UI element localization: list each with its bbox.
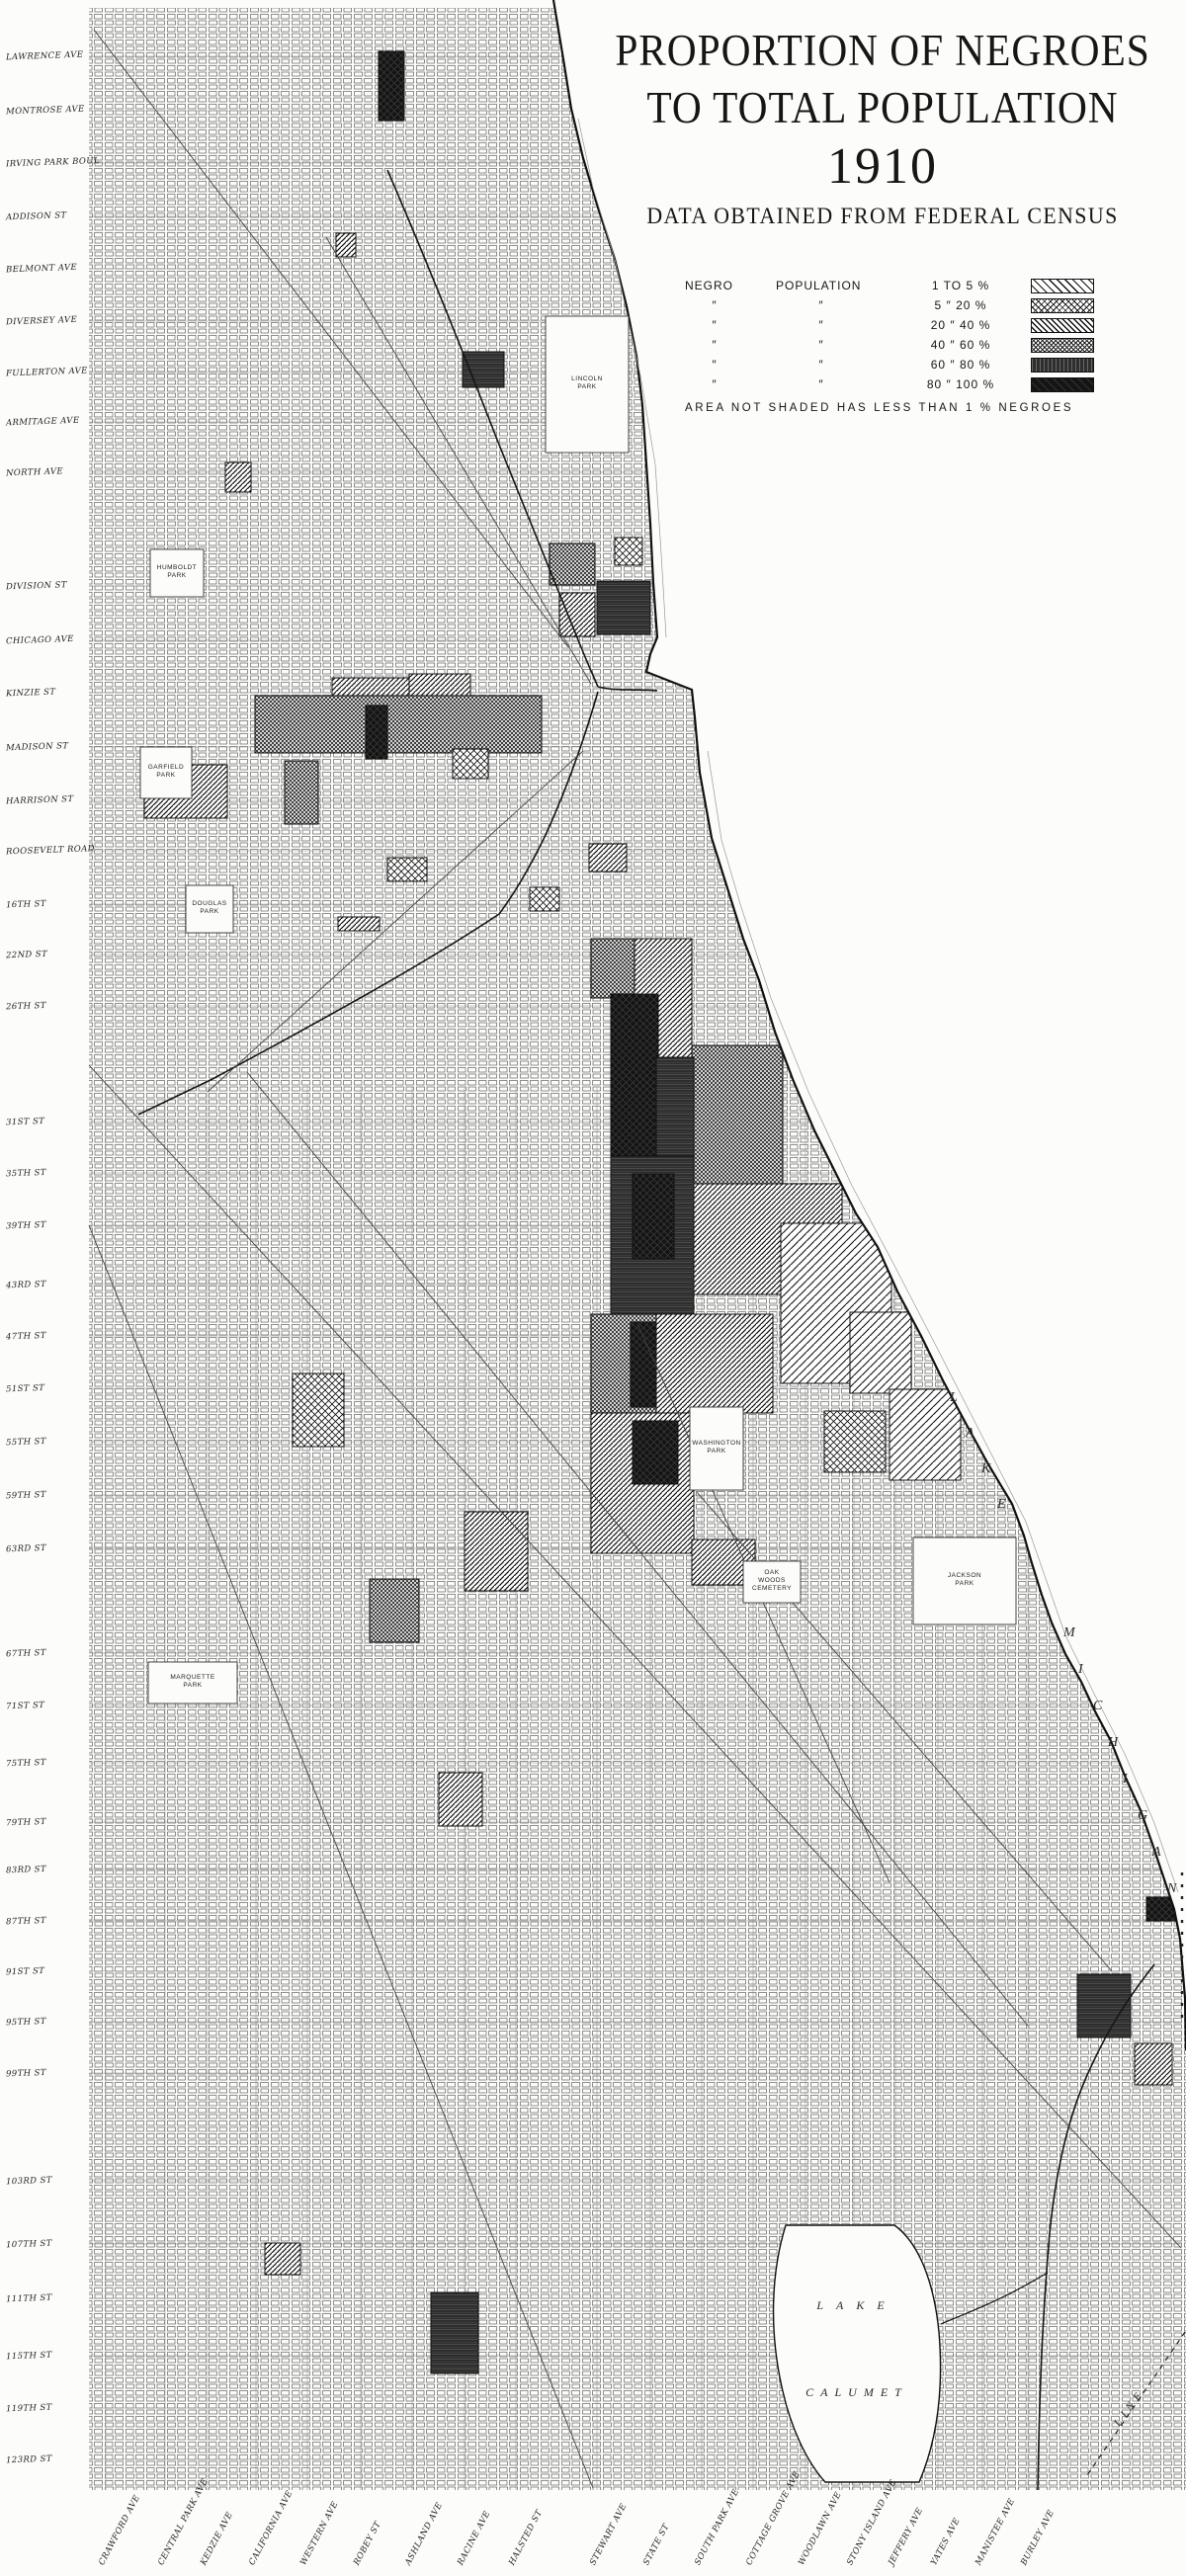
legend-col2: POPULATION: [776, 279, 902, 292]
park-oak-woods-cemetery: OAKWOODSCEMETERY: [743, 1561, 801, 1603]
shaded-district-level-4: [591, 939, 635, 998]
shaded-district-level-1: [850, 1312, 911, 1393]
legend-swatch-level-1: [1031, 279, 1094, 293]
legend-col1: ″: [685, 358, 744, 372]
shaded-district-level-4: [550, 543, 595, 585]
park-lincoln-park: LINCOLNPARK: [546, 316, 629, 453]
legend-swatch-level-3: [1031, 318, 1094, 333]
legend-range: 60 ″ 80 %: [902, 358, 1019, 372]
shaded-district-level-3: [336, 233, 356, 257]
map-title-line2: TO TOTAL POPULATION: [607, 79, 1158, 136]
legend-range: 20 ″ 40 %: [902, 318, 1019, 332]
park-garfield-park: GARFIELDPARK: [140, 747, 192, 798]
lake-michigan-letter: N: [1166, 1881, 1177, 1896]
shaded-district-level-3: [338, 917, 380, 931]
shaded-district-level-2: [615, 538, 642, 565]
lake-michigan-letter: E: [996, 1497, 1006, 1512]
legend-swatch-level-6: [1031, 377, 1094, 392]
shaded-district-level-4: [255, 696, 542, 753]
shaded-district-level-3: [656, 1314, 773, 1413]
map-title-block: PROPORTION OF NEGROES TO TOTAL POPULATIO…: [583, 22, 1182, 229]
legend-row-3: ″″20 ″ 40 %: [685, 315, 1171, 335]
lake-michigan-letter: A: [965, 1426, 974, 1441]
legend-col1: ″: [685, 298, 744, 312]
legend-col1: NEGRO: [685, 279, 776, 292]
legend-rows: NEGROPOPULATION1 TO 5 %″″5 ″ 20 %″″20 ″ …: [685, 276, 1171, 394]
shaded-district-level-5: [597, 581, 650, 634]
shaded-district-level-2: [387, 858, 427, 881]
legend-row-5: ″″60 ″ 80 %: [685, 355, 1171, 374]
shaded-district-level-2: [453, 749, 488, 779]
legend-col1: ″: [685, 377, 744, 391]
map-legend: NEGROPOPULATION1 TO 5 %″″5 ″ 20 %″″20 ″ …: [685, 276, 1171, 414]
shaded-district-level-3: [439, 1773, 482, 1826]
map-title-line1: PROPORTION OF NEGROES: [607, 22, 1158, 79]
map-title-subtitle: DATA OBTAINED FROM FEDERAL CENSUS: [598, 204, 1167, 229]
shaded-district-level-5: [656, 1057, 694, 1158]
legend-row-2: ″″5 ″ 20 %: [685, 295, 1171, 315]
park-marquette-park: MARQUETTEPARK: [148, 1662, 237, 1703]
legend-col2: ″: [776, 338, 867, 352]
legend-row-4: ″″40 ″ 60 %: [685, 335, 1171, 355]
legend-range: 80 ″ 100 %: [902, 377, 1019, 391]
legend-row-6: ″″80 ″ 100 %: [685, 374, 1171, 394]
lake-michigan-letter: H: [1107, 1735, 1119, 1750]
shaded-district-level-6: [631, 1322, 658, 1407]
park-humboldt-park: HUMBOLDTPARK: [150, 549, 204, 597]
lake-michigan-letter: A: [1151, 1845, 1161, 1860]
legend-col1: ″: [685, 338, 744, 352]
lake-michigan-letter: G: [1138, 1808, 1147, 1823]
shaded-district-level-5: [431, 2292, 478, 2373]
legend-row-1: NEGROPOPULATION1 TO 5 %: [685, 276, 1171, 295]
shaded-district-level-6: [633, 1421, 678, 1484]
legend-swatch-level-5: [1031, 358, 1094, 373]
shaded-district-level-3: [465, 1512, 528, 1591]
shaded-district-level-2: [824, 1411, 886, 1472]
map-title-year: 1910: [583, 136, 1182, 198]
legend-swatch-level-4: [1031, 338, 1094, 353]
park-douglas-park: DOUGLASPARK: [186, 885, 233, 933]
lake-michigan-letter: M: [1062, 1625, 1076, 1640]
shaded-district-level-4: [370, 1579, 419, 1642]
shaded-district-level-2: [530, 887, 559, 911]
shaded-district-level-3: [589, 844, 627, 872]
legend-range: 1 TO 5 %: [902, 279, 1019, 292]
shaded-district-level-5: [1077, 1974, 1131, 2037]
shaded-district-level-3: [1135, 2043, 1172, 2085]
shaded-district-level-6: [379, 51, 404, 121]
lake-michigan-letter: L: [949, 1390, 958, 1405]
legend-col2: ″: [776, 298, 867, 312]
shaded-district-level-4: [692, 1045, 783, 1186]
park-jackson-park: JACKSONPARK: [913, 1537, 1016, 1624]
legend-range: 5 ″ 20 %: [902, 298, 1019, 312]
shaded-district-level-3: [559, 593, 595, 636]
legend-swatch-level-2: [1031, 298, 1094, 313]
shaded-district-level-3: [225, 462, 251, 492]
park-washington-park: WASHINGTONPARK: [690, 1407, 743, 1490]
legend-col2: ″: [776, 318, 867, 332]
legend-range: 40 ″ 60 %: [902, 338, 1019, 352]
lake-michigan-letter: C: [1093, 1699, 1103, 1713]
shaded-district-level-3: [265, 2243, 300, 2275]
legend-col1: ″: [685, 318, 744, 332]
shaded-district-level-5: [463, 352, 504, 387]
shaded-district-level-2: [293, 1373, 344, 1447]
legend-note: AREA NOT SHADED HAS LESS THAN 1 % NEGROE…: [685, 402, 1171, 414]
lake-calumet-label-word2: CALUMET: [773, 2385, 941, 2400]
legend-col2: ″: [776, 358, 867, 372]
lake-calumet-label-word1: LAKE: [793, 2298, 921, 2313]
shaded-district-level-6: [366, 706, 387, 759]
lake-michigan-letter: K: [980, 1461, 991, 1476]
map-page: LINCOLNPARKHUMBOLDTPARKGARFIELDPARKDOUGL…: [0, 0, 1186, 2576]
shaded-district-level-4: [285, 761, 318, 824]
shaded-district-level-6: [611, 994, 658, 1158]
legend-col2: ″: [776, 377, 867, 391]
shaded-district-level-6: [633, 1174, 674, 1259]
